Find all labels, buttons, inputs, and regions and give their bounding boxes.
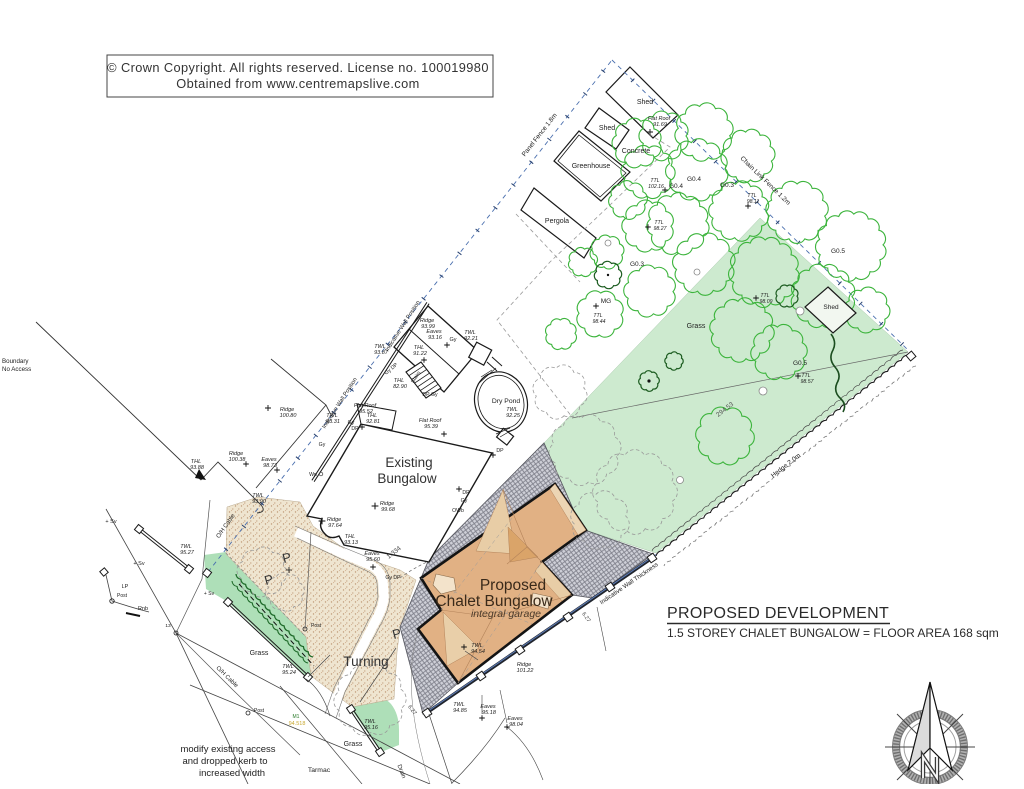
svg-text:LP: LP: [122, 584, 129, 590]
svg-text:G0.5: G0.5: [831, 248, 845, 255]
svg-text:91.69: 91.69: [653, 122, 667, 128]
svg-text:G0.3: G0.3: [630, 261, 644, 268]
svg-text:Eaves: Eaves: [426, 329, 442, 335]
svg-text:Concrete: Concrete: [622, 148, 651, 155]
svg-text:THL: THL: [394, 378, 404, 384]
svg-text:Proposed: Proposed: [480, 577, 546, 594]
svg-text:92.81: 92.81: [366, 419, 380, 425]
svg-text:Flat Roof: Flat Roof: [648, 116, 671, 122]
svg-text:Grass: Grass: [250, 650, 269, 657]
svg-text:TWL: TWL: [464, 330, 476, 336]
svg-text:82.90: 82.90: [393, 384, 408, 390]
svg-text:modify existing access: modify existing access: [180, 744, 275, 755]
svg-text:95.18: 95.18: [482, 710, 497, 716]
svg-text:Post: Post: [311, 623, 322, 629]
svg-text:Grass: Grass: [344, 741, 363, 748]
svg-text:Turning: Turning: [343, 654, 388, 669]
svg-text:Eaves: Eaves: [261, 457, 277, 463]
svg-text:Grass: Grass: [687, 323, 706, 330]
svg-text:PROPOSED DEVELOPMENT: PROPOSED DEVELOPMENT: [667, 605, 889, 622]
svg-text:98.57: 98.57: [801, 379, 815, 385]
svg-text:Eaves: Eaves: [507, 716, 523, 722]
svg-text:G0.4: G0.4: [687, 176, 701, 183]
svg-text:TWL: TWL: [471, 643, 483, 649]
svg-text:99.68: 99.68: [381, 507, 396, 513]
svg-text:DP: DP: [496, 448, 504, 454]
svg-text:TTL: TTL: [593, 313, 602, 319]
svg-text:98.44: 98.44: [593, 319, 606, 325]
svg-text:TWL: TWL: [252, 493, 264, 499]
svg-text:and dropped kerb to: and dropped kerb to: [182, 756, 267, 767]
svg-text:93.88: 93.88: [190, 465, 205, 471]
svg-text:Wp: Wp: [309, 472, 317, 478]
svg-text:Flat Roof: Flat Roof: [354, 403, 377, 409]
svg-text:No Access: No Access: [2, 366, 31, 373]
svg-text:100.38: 100.38: [229, 457, 247, 463]
svg-text:Ridge: Ridge: [327, 517, 341, 523]
svg-text:DP Gy: DP Gy: [422, 392, 438, 398]
svg-text:Eaves: Eaves: [364, 551, 380, 557]
svg-text:Ridge: Ridge: [380, 501, 394, 507]
svg-text:Flat Roof: Flat Roof: [419, 418, 442, 424]
svg-text:OWb: OWb: [452, 508, 464, 514]
svg-text:TWL: TWL: [453, 702, 465, 708]
svg-text:TWL: TWL: [180, 544, 192, 550]
svg-text:Shed: Shed: [823, 304, 839, 311]
svg-text:98.11: 98.11: [747, 199, 760, 205]
svg-text:92.25: 92.25: [506, 413, 521, 419]
svg-text:DP: DP: [351, 426, 359, 432]
svg-text:95.16: 95.16: [364, 725, 379, 731]
svg-text:95.24: 95.24: [282, 670, 296, 676]
svg-text:TTL: TTL: [654, 220, 663, 226]
svg-text:Greenhouse: Greenhouse: [572, 163, 611, 170]
svg-text:97.64: 97.64: [328, 523, 342, 529]
svg-text:Post: Post: [254, 708, 265, 714]
svg-text:95.27: 95.27: [180, 550, 195, 556]
svg-text:+ Sv: + Sv: [105, 519, 116, 525]
svg-text:TTL: TTL: [760, 293, 769, 299]
svg-text:G0.4: G0.4: [669, 183, 683, 190]
svg-text:Rnb: Rnb: [138, 606, 148, 612]
svg-text:increased width: increased width: [199, 768, 265, 779]
svg-text:95.60: 95.60: [366, 557, 381, 563]
svg-text:98.04: 98.04: [509, 722, 523, 728]
svg-text:Gy: Gy: [449, 337, 456, 343]
svg-text:integral garage: integral garage: [471, 608, 541, 620]
svg-text:+ Sv: + Sv: [133, 561, 144, 567]
svg-text:Shed: Shed: [637, 99, 653, 106]
svg-text:Eaves: Eaves: [480, 704, 496, 710]
svg-text:Tarmac: Tarmac: [308, 767, 331, 774]
svg-text:Post: Post: [117, 593, 128, 599]
svg-text:Bungalow: Bungalow: [377, 471, 437, 486]
svg-text:94.54: 94.54: [471, 649, 485, 655]
svg-text:THL: THL: [414, 345, 424, 351]
svg-text:101.22: 101.22: [517, 668, 534, 674]
svg-text:Ridge: Ridge: [280, 407, 294, 413]
svg-text:13: 13: [165, 623, 171, 629]
svg-text:Gy: Gy: [319, 442, 326, 448]
svg-text:Existing: Existing: [385, 455, 432, 470]
svg-text:98.73: 98.73: [263, 463, 278, 469]
svg-text:G0.3: G0.3: [720, 182, 734, 189]
svg-text:THL: THL: [345, 534, 355, 540]
svg-text:G0.5: G0.5: [793, 360, 807, 367]
svg-text:TTL: TTL: [747, 193, 756, 199]
svg-text:Gy: Gy: [461, 498, 468, 504]
svg-text:100.80: 100.80: [280, 413, 298, 419]
svg-text:MG: MG: [601, 298, 611, 305]
svg-text:98.09: 98.09: [760, 299, 773, 305]
svg-text:94.518: 94.518: [289, 721, 306, 727]
svg-text:1.5 STOREY CHALET BUNGALOW = F: 1.5 STOREY CHALET BUNGALOW = FLOOR AREA …: [667, 626, 999, 640]
svg-text:Pergola: Pergola: [545, 218, 569, 225]
svg-text:Ridge: Ridge: [517, 662, 531, 668]
svg-text:+ Sv: + Sv: [204, 591, 215, 597]
svg-text:Boundary: Boundary: [2, 358, 29, 365]
svg-text:98.27: 98.27: [654, 226, 668, 232]
svg-text:© Crown Copyright. All rights: © Crown Copyright. All rights reserved. …: [107, 60, 489, 75]
svg-text:95.39: 95.39: [424, 424, 438, 430]
svg-text:Gy DP: Gy DP: [385, 575, 401, 581]
svg-text:91.22: 91.22: [413, 351, 427, 357]
svg-text:Shed: Shed: [599, 125, 615, 132]
svg-text:Dry Pond: Dry Pond: [492, 398, 521, 405]
svg-text:Obtained from www.centremapsli: Obtained from www.centremapslive.com: [176, 76, 419, 91]
svg-text:THL: THL: [191, 459, 201, 465]
svg-text:TWL: TWL: [506, 407, 518, 413]
svg-text:Ridge: Ridge: [420, 318, 434, 324]
svg-text:TWL: TWL: [282, 664, 294, 670]
svg-text:Ridge: Ridge: [229, 451, 243, 457]
svg-text:DP: DP: [462, 490, 470, 496]
svg-text:TWL: TWL: [364, 719, 376, 725]
svg-text:THL: THL: [367, 413, 377, 419]
svg-text:93.13: 93.13: [344, 540, 359, 546]
svg-text:TTL: TTL: [801, 373, 810, 379]
svg-text:102.16: 102.16: [648, 184, 664, 190]
svg-text:M1: M1: [293, 714, 300, 720]
svg-text:TTL: TTL: [650, 178, 659, 184]
svg-text:93.16: 93.16: [428, 335, 443, 341]
svg-text:94.85: 94.85: [453, 708, 468, 714]
svg-text:92.21: 92.21: [464, 336, 478, 342]
svg-text:93.90: 93.90: [252, 499, 267, 505]
